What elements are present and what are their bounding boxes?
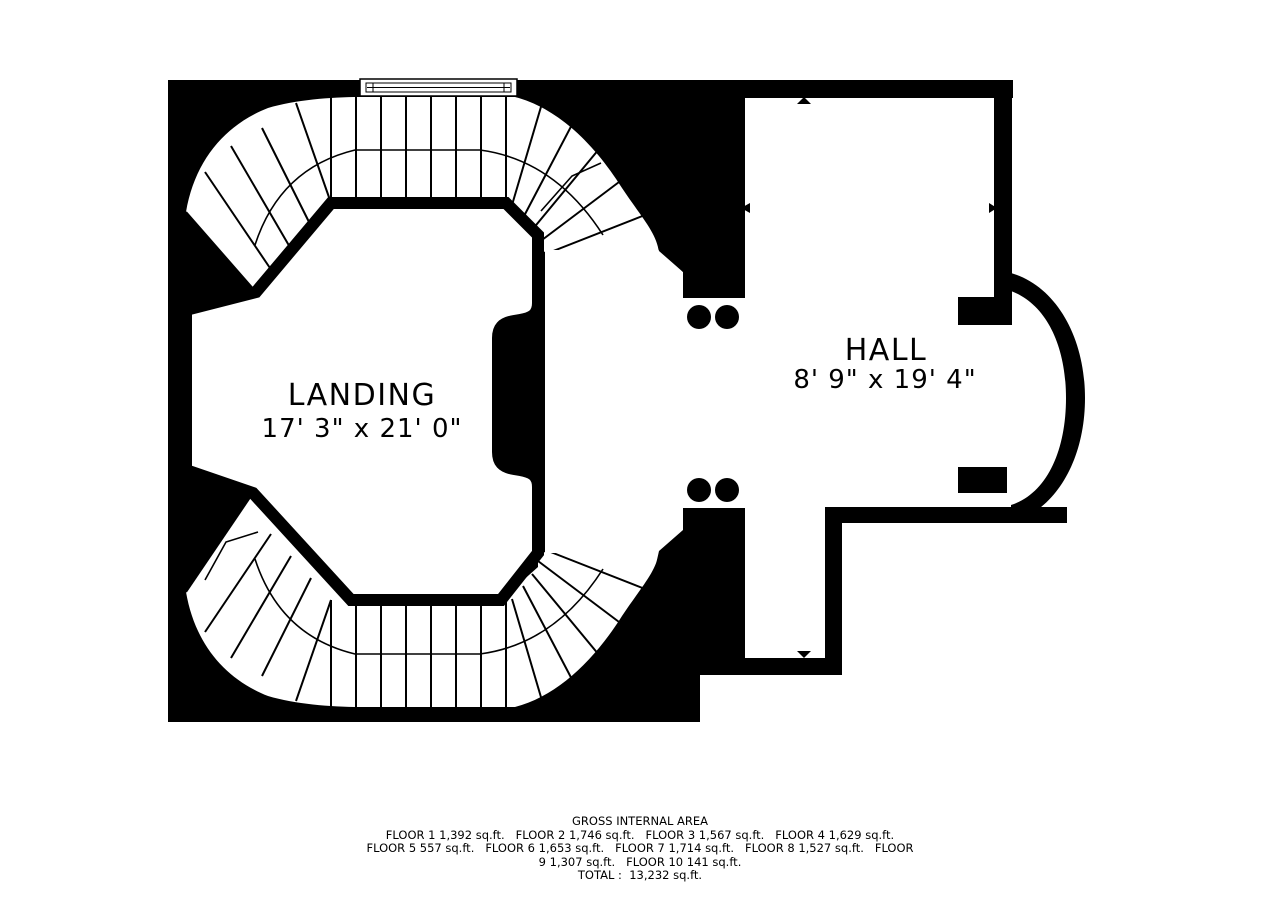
footer-areas-line: 9 1,307 sq.ft. FLOOR 10 141 sq.ft. [0, 856, 1280, 870]
column [687, 478, 711, 502]
bay-opening-lower-stub [958, 467, 1007, 493]
stair-window [360, 79, 517, 96]
footer-areas-line: FLOOR 5 557 sq.ft. FLOOR 6 1,653 sq.ft. … [0, 842, 1280, 856]
marker-arrow-down [797, 651, 811, 658]
footer-total-line: TOTAL : 13,232 sq.ft. [0, 869, 1280, 883]
marker-arrow-up [797, 97, 811, 104]
hall-corridor-bottom-wall [700, 658, 842, 675]
landing-room-dimensions: 17' 3" x 21' 0" [262, 414, 463, 444]
bay-opening-upper-stub [958, 297, 1012, 325]
bay-window-curved-wall [1011, 273, 1085, 523]
hall-top-wall [700, 80, 1013, 98]
hall-room-dimensions: 8' 9" x 19' 4" [793, 365, 976, 395]
floor-plan-page: LANDING 17' 3" x 21' 0" HALL 8' 9" x 19'… [0, 0, 1280, 905]
column [715, 305, 739, 329]
column [687, 305, 711, 329]
landing-room-label: LANDING [288, 378, 437, 413]
gross-internal-area-summary: GROSS INTERNAL AREA FLOOR 1 1,392 sq.ft.… [0, 815, 1280, 883]
footer-areas-line: FLOOR 1 1,392 sq.ft. FLOOR 2 1,746 sq.ft… [0, 829, 1280, 843]
hall-room-label: HALL [845, 333, 928, 368]
hall-right-wall [994, 80, 1012, 325]
hall-corridor-right-wall [825, 507, 842, 675]
footer-title: GROSS INTERNAL AREA [0, 815, 1280, 829]
column [715, 478, 739, 502]
floor-plan-drawing: LANDING 17' 3" x 21' 0" HALL 8' 9" x 19'… [0, 0, 1280, 905]
